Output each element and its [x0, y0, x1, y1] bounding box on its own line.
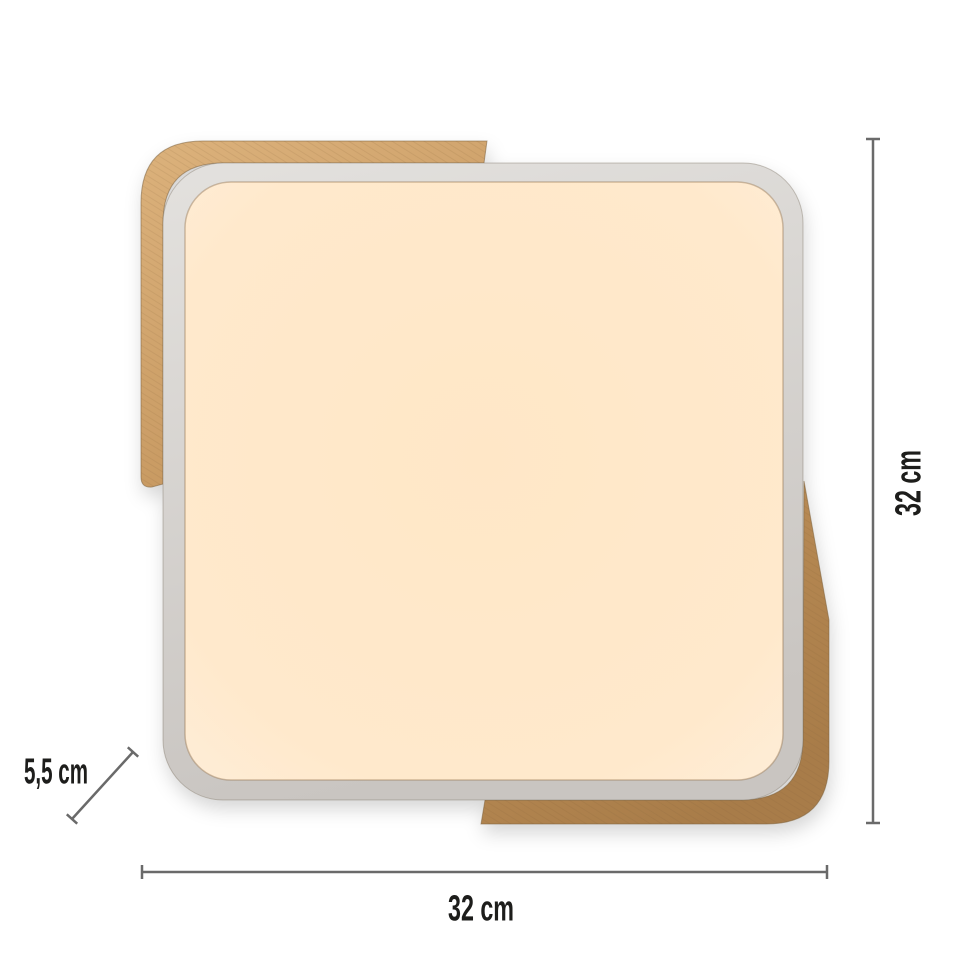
lamp-diagram-canvas: 32 cm 32 cm 5,5 cm	[0, 0, 970, 970]
lamp-light-panel	[185, 182, 783, 780]
depth-dimension-label: 5,5 cm	[24, 751, 88, 792]
width-dimension-label: 32 cm	[448, 888, 514, 929]
lamp	[141, 141, 829, 824]
height-dimension-label: 32 cm	[888, 450, 929, 516]
product-dimension-diagram: 32 cm 32 cm 5,5 cm	[0, 0, 970, 970]
